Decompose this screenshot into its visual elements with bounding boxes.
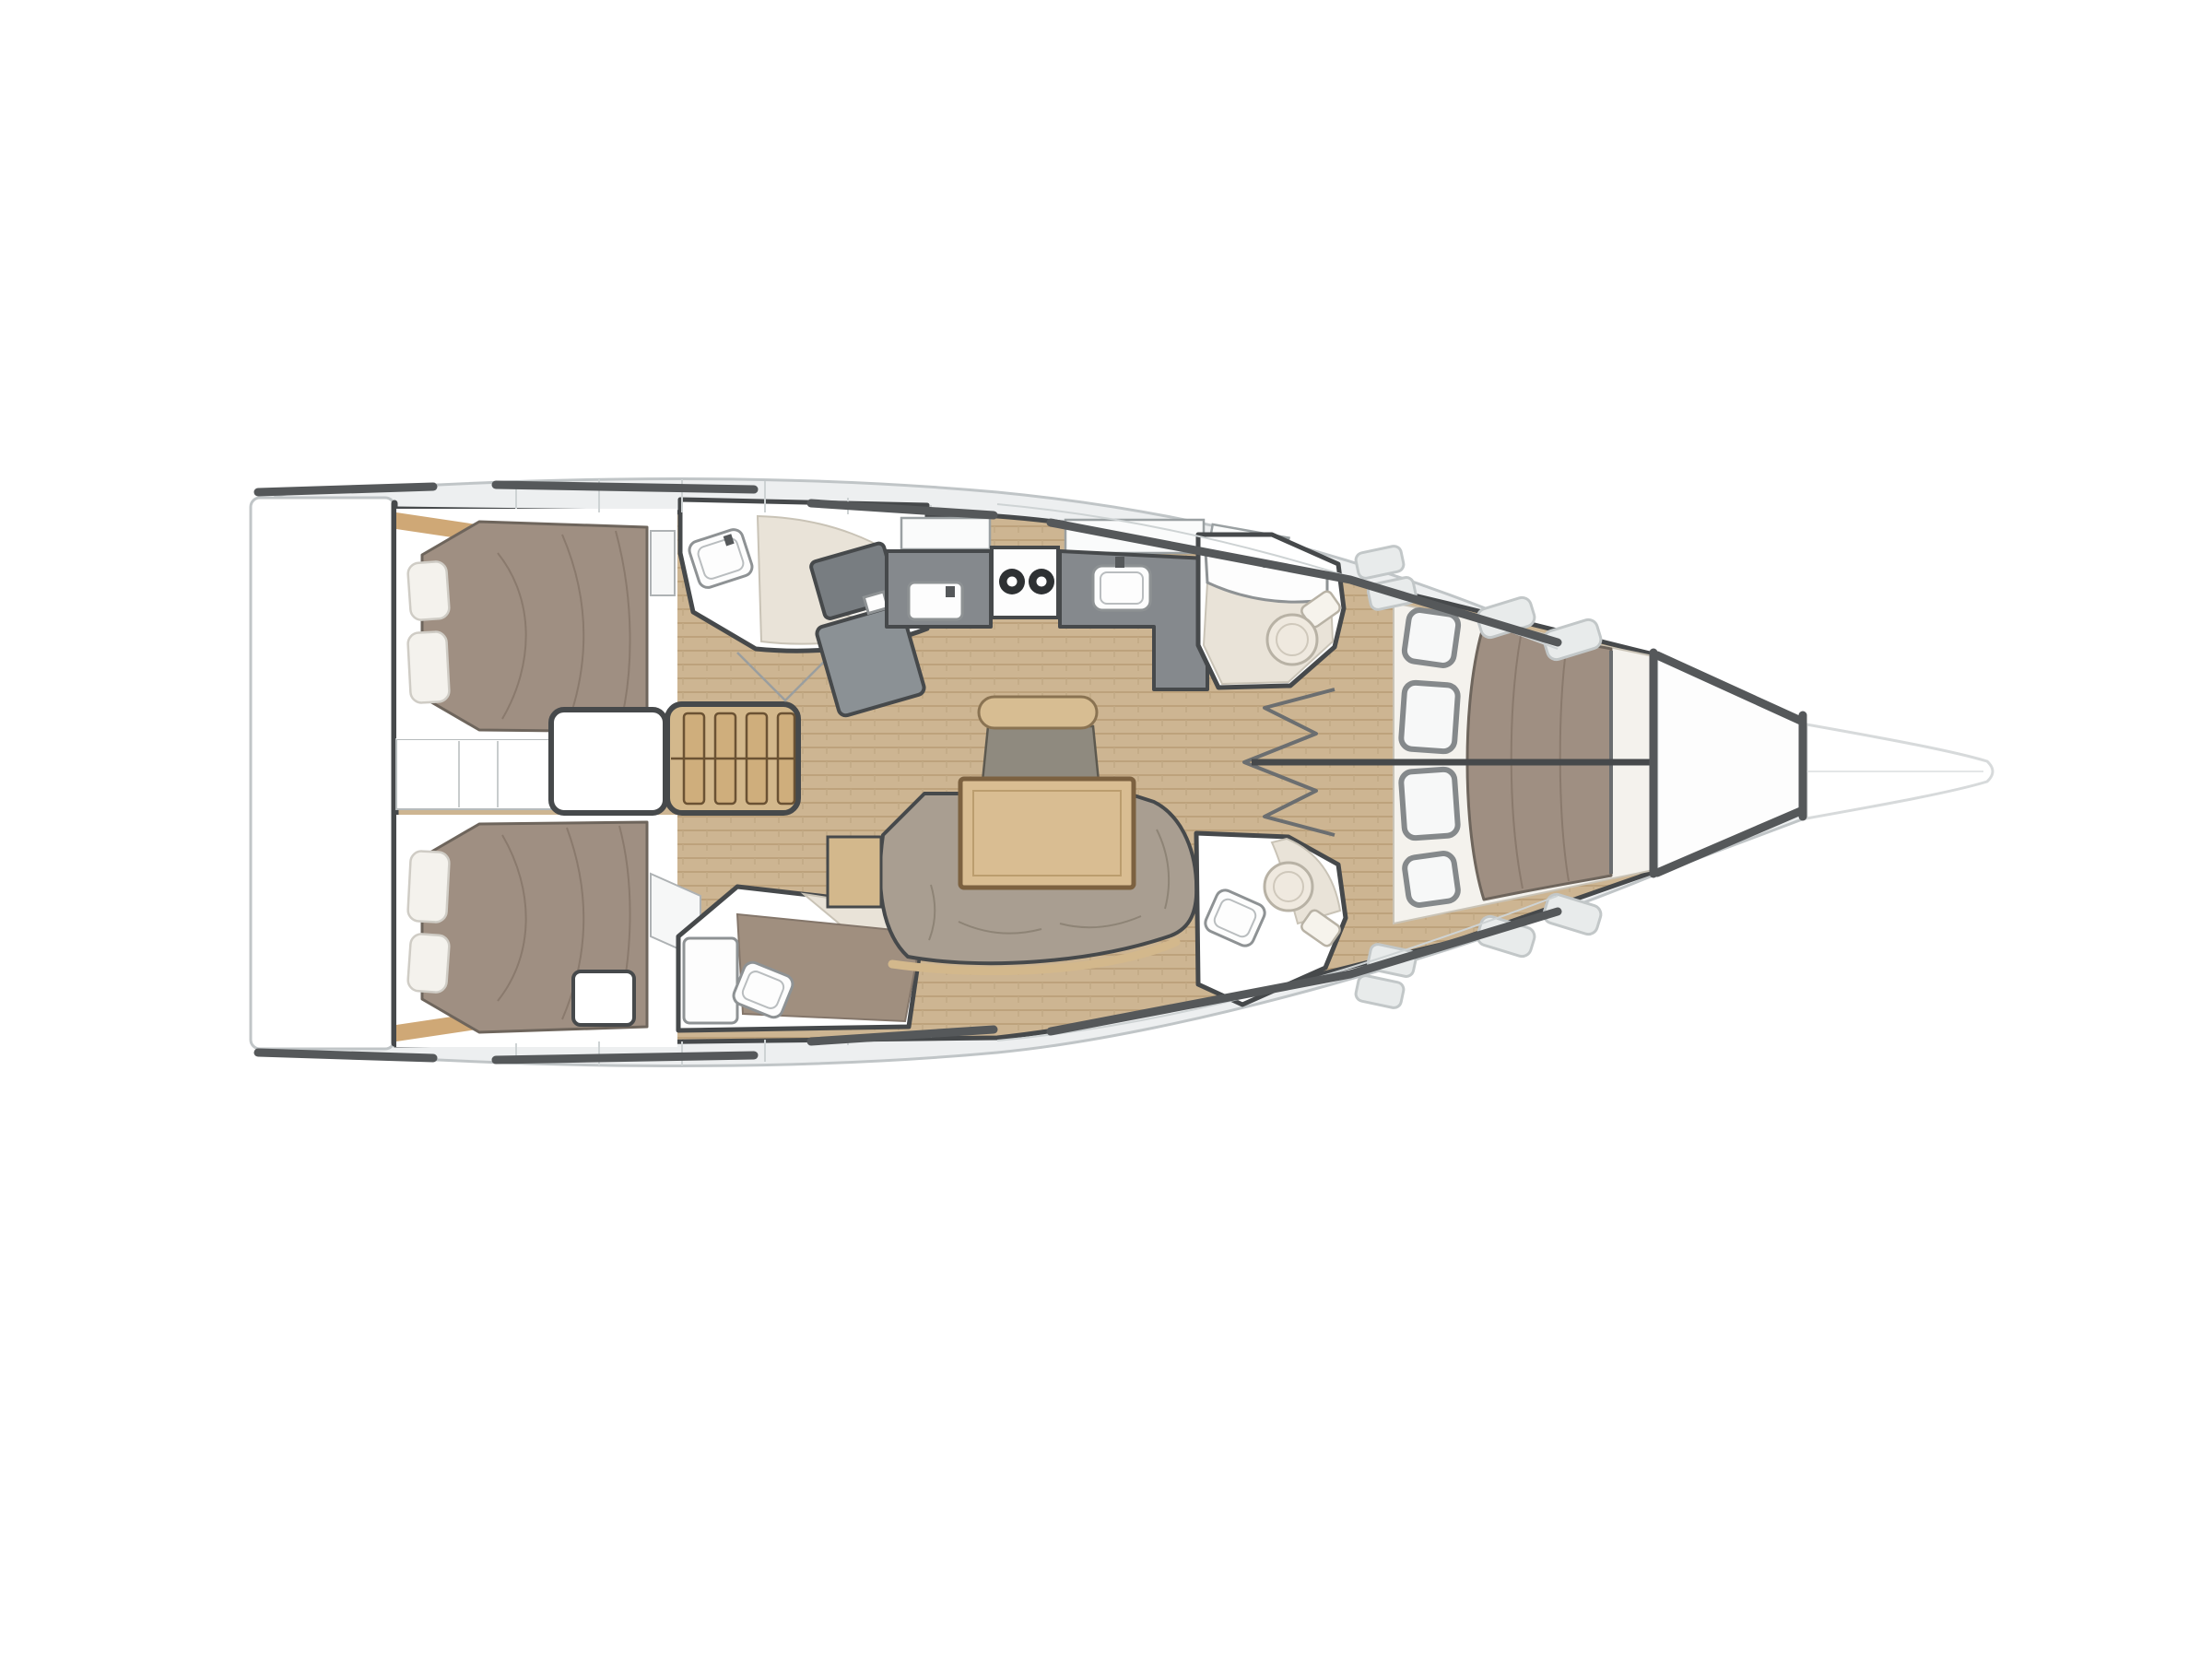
cabin-door (573, 971, 634, 1025)
aft-corridor (396, 739, 551, 809)
wardrobe (651, 531, 675, 595)
pillow (407, 561, 450, 621)
storage-locker (1401, 769, 1459, 839)
pillow (407, 851, 450, 923)
swim-platform (251, 498, 394, 1049)
top-load-fridge (909, 582, 962, 619)
aft-cabin-port (396, 815, 700, 1047)
salon-table (960, 779, 1134, 888)
latch (864, 592, 888, 613)
floor-plan-canvas (0, 0, 2212, 1659)
stove (992, 547, 1058, 618)
double-bed (422, 522, 647, 732)
aft-cabin-starboard (396, 509, 677, 739)
salon-chair (979, 697, 1099, 782)
hatch (1355, 545, 1406, 580)
companionway-steps (667, 704, 798, 813)
storage-locker (1401, 682, 1459, 752)
pillow (407, 934, 450, 994)
yacht-deck-plan (0, 0, 2212, 1659)
engine-compartment (551, 710, 665, 813)
side-shelf (828, 837, 881, 907)
galley-sink (1093, 557, 1150, 610)
bowsprit (1806, 724, 1993, 818)
companionway (551, 704, 798, 813)
storage-locker (1403, 609, 1459, 667)
upper-cabinet (901, 518, 990, 549)
storage-locker (1404, 852, 1460, 906)
pillow (407, 631, 450, 703)
shower-door (684, 938, 737, 1023)
hatch (1355, 974, 1406, 1009)
